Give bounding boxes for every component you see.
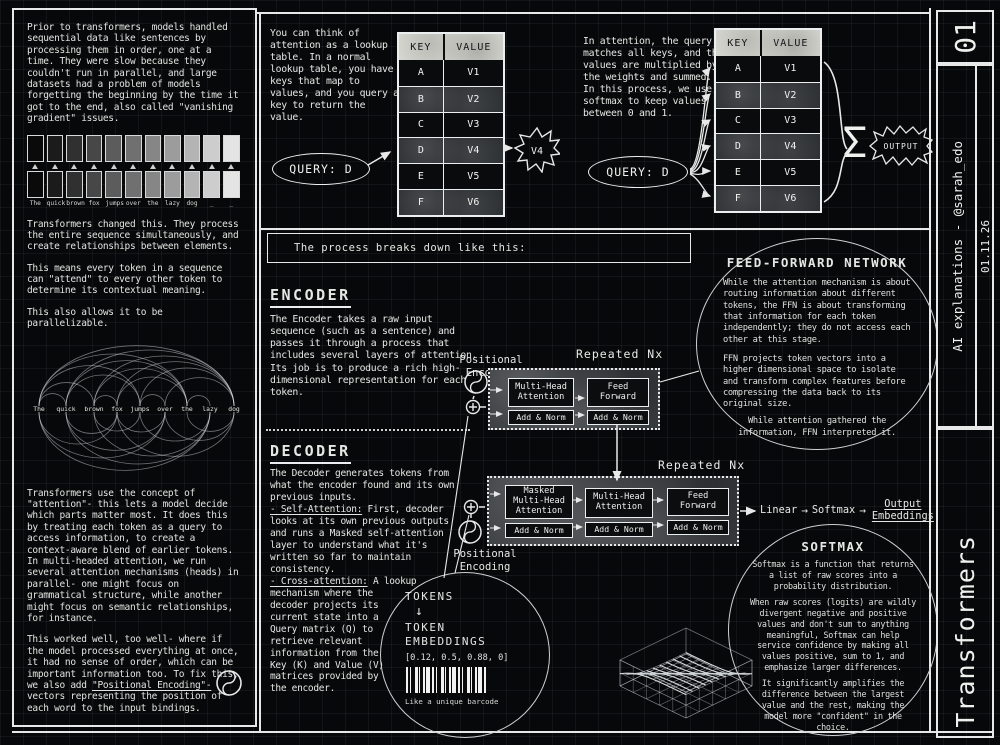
v4-result-label: V4 xyxy=(531,146,543,157)
main-top-rule xyxy=(257,12,930,14)
decoder-repeated-label: Repeated Nx xyxy=(658,458,745,472)
cross-attention-term: - Cross-attention: xyxy=(270,576,368,587)
query-label: QUERY: D xyxy=(289,162,352,176)
value-header: VALUE xyxy=(443,34,503,60)
arrow-icon: → xyxy=(859,504,866,517)
token-box xyxy=(223,171,240,198)
date-wrap: 01.11.26 xyxy=(976,64,994,428)
decoder-block-diagram: Masked Multi-Head Attention Add & Norm M… xyxy=(487,476,739,546)
softmax-paragraph: Softmax is a function that returns a lis… xyxy=(749,559,917,592)
token-box xyxy=(66,135,83,162)
add-norm-block: Add & Norm xyxy=(667,520,729,535)
table-row: DV4 xyxy=(399,137,503,163)
multi-head-attention-block: Multi-Head Attention xyxy=(508,378,574,407)
attention-arcs-diagram: The quick brown fox jumps over the lazy … xyxy=(27,340,244,480)
barcode-caption: Like a unique barcode xyxy=(405,697,549,706)
main-left-rule xyxy=(259,12,261,731)
token-box xyxy=(66,171,83,198)
table-row: DV4 xyxy=(716,133,820,159)
decoder-intro: The Decoder generates tokens from what t… xyxy=(270,468,454,503)
arc-word: jumps xyxy=(130,405,149,413)
table-row: AV1 xyxy=(716,56,820,82)
arc-word: fox xyxy=(111,405,123,413)
encoder-add-position-icon xyxy=(465,399,481,415)
lookup-explainer-text: You can think of attention as a lookup t… xyxy=(270,28,400,124)
issue-number: 01 xyxy=(949,20,982,54)
positional-encoding-paragraph: This worked well, too well- where if the… xyxy=(27,634,242,714)
output-embeddings-label: Output Embeddings xyxy=(870,498,936,523)
softmax-paragraph: When raw scores (logits) are wildly dive… xyxy=(749,597,917,673)
linear-label: Linear xyxy=(760,504,797,516)
token-row-output xyxy=(27,135,242,162)
encoder-repeated-label: Repeated Nx xyxy=(576,347,663,361)
token-box xyxy=(203,135,220,162)
token-word: _ xyxy=(203,200,220,207)
softmax-heading: SOFTMAX xyxy=(749,539,917,554)
feed-forward-block: Feed Forward xyxy=(587,378,649,407)
arc-word: lazy xyxy=(202,405,218,413)
decoder-positional-icon xyxy=(456,518,484,546)
arc-word: dog xyxy=(228,405,240,413)
token-row-input xyxy=(27,171,242,198)
lookup-table-header: KEY VALUE xyxy=(399,34,503,60)
feed-forward-block: Feed Forward xyxy=(667,488,729,516)
date-text: 01.11.26 xyxy=(979,220,992,273)
lookup-query-bubble: QUERY: D xyxy=(272,153,370,185)
token-word: quick xyxy=(47,200,64,207)
query-label: QUERY: D xyxy=(606,165,669,179)
softmax-paragraph: It significantly amplifies the differenc… xyxy=(749,678,917,733)
token-box xyxy=(86,171,103,198)
barcode-graphic xyxy=(405,666,487,694)
text-run: vectors representing the position of eac… xyxy=(27,691,222,713)
arc-word: over xyxy=(157,405,173,413)
issue-number-box: 01 xyxy=(936,10,994,64)
token-embeddings-circle: TOKENS ↓ TOKEN EMBEDDINGS [0.12, 0.5, 0.… xyxy=(380,572,550,738)
token-box xyxy=(164,135,181,162)
arc-word: the xyxy=(181,405,193,413)
positional-encoding-term: "Positional Encoding"- xyxy=(92,680,211,691)
token-embeddings-label: TOKEN EMBEDDINGS xyxy=(405,621,495,650)
token-word: jumps xyxy=(105,200,122,207)
token-box xyxy=(184,135,201,162)
encoder-positional-icon xyxy=(462,368,490,396)
token-box xyxy=(47,135,64,162)
table-row: BV2 xyxy=(716,82,820,108)
value-header: VALUE xyxy=(760,30,820,56)
add-norm-block: Add & Norm xyxy=(508,410,574,425)
attention-table: KEY VALUE AV1 BV2 CV3 DV4 EV5 FV6 xyxy=(714,28,822,213)
sequential-token-diagram: The quick brown fox jumps over the lazy … xyxy=(27,135,242,207)
ffn-paragraph: While attention gathered the information… xyxy=(723,416,911,439)
process-banner-text: The process breaks down like this: xyxy=(294,242,526,254)
table-row: CV3 xyxy=(716,108,820,134)
table-row: BV2 xyxy=(399,86,503,112)
lookup-table: KEY VALUE AV1 BV2 CV3 DV4 EV5 FV6 xyxy=(397,32,505,217)
self-attention-term: - Self-Attention: xyxy=(270,504,362,515)
token-box xyxy=(145,171,162,198)
byline-wrap: AI explanations - @sarah_edo xyxy=(940,64,974,428)
decoder-heading: DECODER xyxy=(270,442,351,464)
encoder-heading: ENCODER xyxy=(270,286,351,308)
tokens-label: TOKENS xyxy=(405,590,549,603)
token-word: brown xyxy=(66,200,83,207)
token-box xyxy=(105,171,122,198)
token-box xyxy=(86,135,103,162)
token-word: The xyxy=(27,200,44,207)
token-word: over xyxy=(125,200,142,207)
poster-title: Transformers xyxy=(951,535,980,728)
add-norm-block: Add & Norm xyxy=(585,522,653,537)
attention-paragraph: Transformers use the concept of "attenti… xyxy=(27,488,242,625)
output-burst: OUTPUT xyxy=(866,124,936,168)
token-word: lazy xyxy=(164,200,181,207)
masked-multi-head-attention-block: Masked Multi-Head Attention xyxy=(505,485,573,519)
arc-word: The xyxy=(33,405,45,413)
decoder-output-chain: Linear → Softmax → Output Embeddings xyxy=(760,498,936,523)
key-header: KEY xyxy=(716,30,760,56)
token-box xyxy=(27,171,44,198)
attention-explainer-text: In attention, the query matches all keys… xyxy=(583,36,725,120)
table-row: CV3 xyxy=(399,112,503,138)
token-word: fox xyxy=(86,200,103,207)
paragraph: This means every token in a sequence can… xyxy=(27,263,242,297)
table-row: EV5 xyxy=(716,159,820,185)
token-word: dog xyxy=(184,200,201,207)
dotted-separator xyxy=(266,429,470,431)
encoder-block-diagram: Multi-Head Attention Add & Norm Feed For… xyxy=(488,368,660,430)
table-row: EV5 xyxy=(399,163,503,189)
attention-query-bubble: QUERY: D xyxy=(588,156,688,188)
paragraph: Transformers changed this. They process … xyxy=(27,219,242,253)
infographic-page: Prior to transformers, models handled se… xyxy=(0,0,1000,745)
token-box xyxy=(164,171,181,198)
table-row: FV6 xyxy=(716,185,820,211)
positional-encoding-icon xyxy=(214,668,244,698)
decoder-add-position-icon xyxy=(463,499,479,515)
token-word: _ xyxy=(223,200,240,207)
token-word-labels: The quick brown fox jumps over the lazy … xyxy=(27,200,242,207)
token-box xyxy=(223,135,240,162)
decoder-positional-label: Positional Encoding xyxy=(440,548,530,574)
output-label: OUTPUT xyxy=(884,142,919,151)
softmax-note-circle: SOFTMAX Softmax is a function that retur… xyxy=(728,524,938,736)
ffn-paragraph: While the attention mechanism is about r… xyxy=(723,278,911,346)
token-box xyxy=(47,171,64,198)
softmax-label: Softmax xyxy=(812,504,855,516)
mid-rule xyxy=(259,228,930,230)
key-header: KEY xyxy=(399,34,443,60)
multi-head-attention-block: Multi-Head Attention xyxy=(585,488,653,518)
embedding-vector: [0.12, 0.5, 0.88, 0] xyxy=(405,653,549,663)
ffn-paragraph: FFN projects token vectors into a higher… xyxy=(723,354,911,411)
process-banner: The process breaks down like this: xyxy=(267,233,691,263)
left-intro-panel: Prior to transformers, models handled se… xyxy=(12,8,257,727)
token-box xyxy=(145,135,162,162)
down-arrow-icon: ↓ xyxy=(415,604,549,619)
token-up-arrows xyxy=(27,164,242,169)
arc-word: quick xyxy=(56,405,75,413)
ffn-note-circle: FEED-FORWARD NETWORK While the attention… xyxy=(696,238,938,450)
table-row: FV6 xyxy=(399,189,503,215)
token-box xyxy=(125,171,142,198)
table-row: AV1 xyxy=(399,60,503,86)
attention-table-header: KEY VALUE xyxy=(716,30,820,56)
arc-word: brown xyxy=(84,405,103,413)
add-norm-block: Add & Norm xyxy=(587,410,649,425)
byline-text: AI explanations - @sarah_edo xyxy=(950,141,965,352)
sum-symbol: Σ xyxy=(842,118,867,167)
ffn-heading: FEED-FORWARD NETWORK xyxy=(723,255,911,270)
token-box xyxy=(105,135,122,162)
token-box xyxy=(203,171,220,198)
intro-paragraph: Prior to transformers, models handled se… xyxy=(27,22,242,125)
v4-result-burst: V4 xyxy=(514,127,560,173)
token-box xyxy=(125,135,142,162)
token-word: the xyxy=(145,200,162,207)
paragraph: This also allows it to be parallelizable… xyxy=(27,307,242,330)
title-box: Transformers xyxy=(936,428,994,738)
token-box xyxy=(184,171,201,198)
token-box xyxy=(27,135,44,162)
add-norm-block: Add & Norm xyxy=(505,523,573,538)
arrow-icon: → xyxy=(801,504,808,517)
